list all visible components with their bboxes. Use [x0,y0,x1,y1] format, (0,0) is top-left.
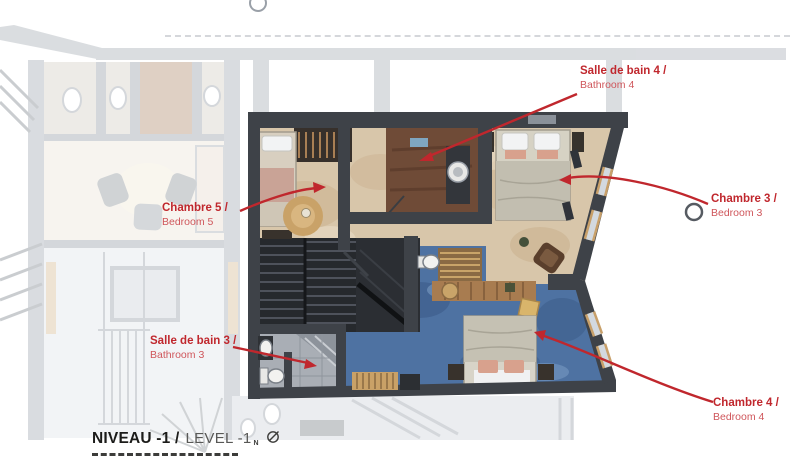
label-bedroom5-fr: Chambre 5 / [162,202,228,216]
label-bathroom3: Salle de bain 3 / Bathroom 3 [150,335,236,361]
label-bedroom5-en: Bedroom 5 [162,216,228,229]
level-title-block: NIVEAU -1 / LEVEL -1 N [92,429,280,456]
floor-plan-stage: Chambre 5 / Bedroom 5 Salle de bain 4 / … [0,0,800,464]
label-bedroom5: Chambre 5 / Bedroom 5 [162,202,228,228]
label-bathroom4: Salle de bain 4 / Bathroom 4 [580,65,666,91]
staircase [258,238,420,332]
north-label: N [254,440,259,447]
rug-bedroom5 [283,196,323,236]
main-plan [233,94,713,402]
label-bedroom4-en: Bedroom 4 [713,411,779,424]
bench-bedroom4 [352,372,420,390]
reference-circle-right [686,204,702,220]
label-bedroom4-fr: Chambre 4 / [713,397,779,411]
label-bathroom4-en: Bathroom 4 [580,79,666,92]
level-title-en: LEVEL -1 [185,430,251,447]
label-bedroom3-fr: Chambre 3 / [711,193,777,207]
level-title-fr: NIVEAU -1 / [92,430,179,448]
label-bedroom4: Chambre 4 / Bedroom 4 [713,397,779,423]
label-bathroom3-fr: Salle de bain 3 / [150,335,236,349]
label-bathroom3-en: Bathroom 3 [150,349,236,362]
floor-plan-canvas [0,0,800,464]
wc-toilet [418,255,439,269]
label-bathroom4-fr: Salle de bain 4 / [580,65,666,79]
wall-vent [528,115,556,124]
label-bedroom3: Chambre 3 / Bedroom 3 [711,193,777,219]
title-dashed-underline [92,453,238,456]
top-dashed-line [165,35,790,37]
reference-circle-top [250,0,266,11]
north-compass-icon [266,430,280,444]
label-bedroom3-en: Bedroom 3 [711,207,777,220]
